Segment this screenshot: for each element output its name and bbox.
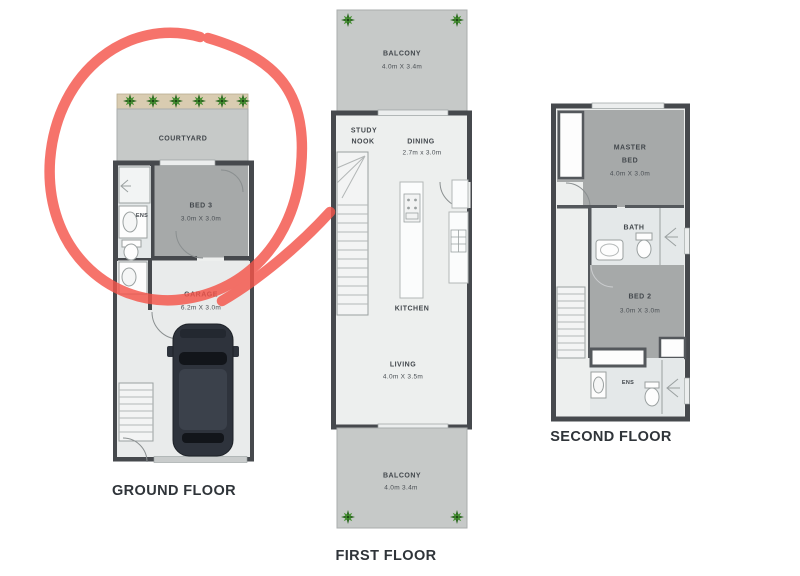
garage-label: GARAGE	[184, 292, 218, 299]
ens-label: ENS	[136, 213, 148, 219]
master-bed-dims: 4.0m X 3.0m	[610, 171, 650, 178]
master-bed-label-2: BED	[622, 158, 638, 165]
balcony-top-label: BALCONY	[383, 51, 421, 58]
living-dims: 4.0m X 3.5m	[383, 374, 423, 381]
master-bed-label-1: MASTER	[614, 145, 647, 152]
bed3-dims: 3.0m X 3.0m	[181, 216, 221, 223]
balcony-top-dims: 4.0m X 3.4m	[382, 64, 422, 71]
balcony-bottom-dims: 4.0m 3.4m	[384, 485, 417, 492]
living-label: LIVING	[390, 362, 416, 369]
garage-dims: 6.2m X 3.0m	[181, 305, 221, 312]
bed2-dims: 3.0m X 3.0m	[620, 308, 660, 315]
balcony-bottom-label: BALCONY	[383, 473, 421, 480]
study-nook-label-2: NOOK	[352, 139, 375, 146]
study-nook-label-1: STUDY	[351, 128, 377, 135]
kitchen-label: KITCHEN	[395, 306, 430, 313]
second-ens-label: ENS	[622, 380, 634, 386]
bed3-label: BED 3	[189, 203, 212, 210]
labels-layer: COURTYARD ENS BED 3 3.0m X 3.0m GARAGE 6…	[0, 0, 800, 576]
dining-dims: 2.7m x 3.0m	[402, 150, 441, 157]
second-floor-title: SECOND FLOOR	[550, 429, 672, 445]
bed2-label: BED 2	[628, 294, 651, 301]
first-floor-title: FIRST FLOOR	[335, 548, 436, 564]
floorplan-image: COURTYARD ENS BED 3 3.0m X 3.0m GARAGE 6…	[0, 0, 800, 576]
bath-label: BATH	[624, 225, 645, 232]
dining-label: DINING	[407, 139, 435, 146]
courtyard-label: COURTYARD	[159, 136, 208, 143]
ground-floor-title: GROUND FLOOR	[112, 483, 236, 499]
